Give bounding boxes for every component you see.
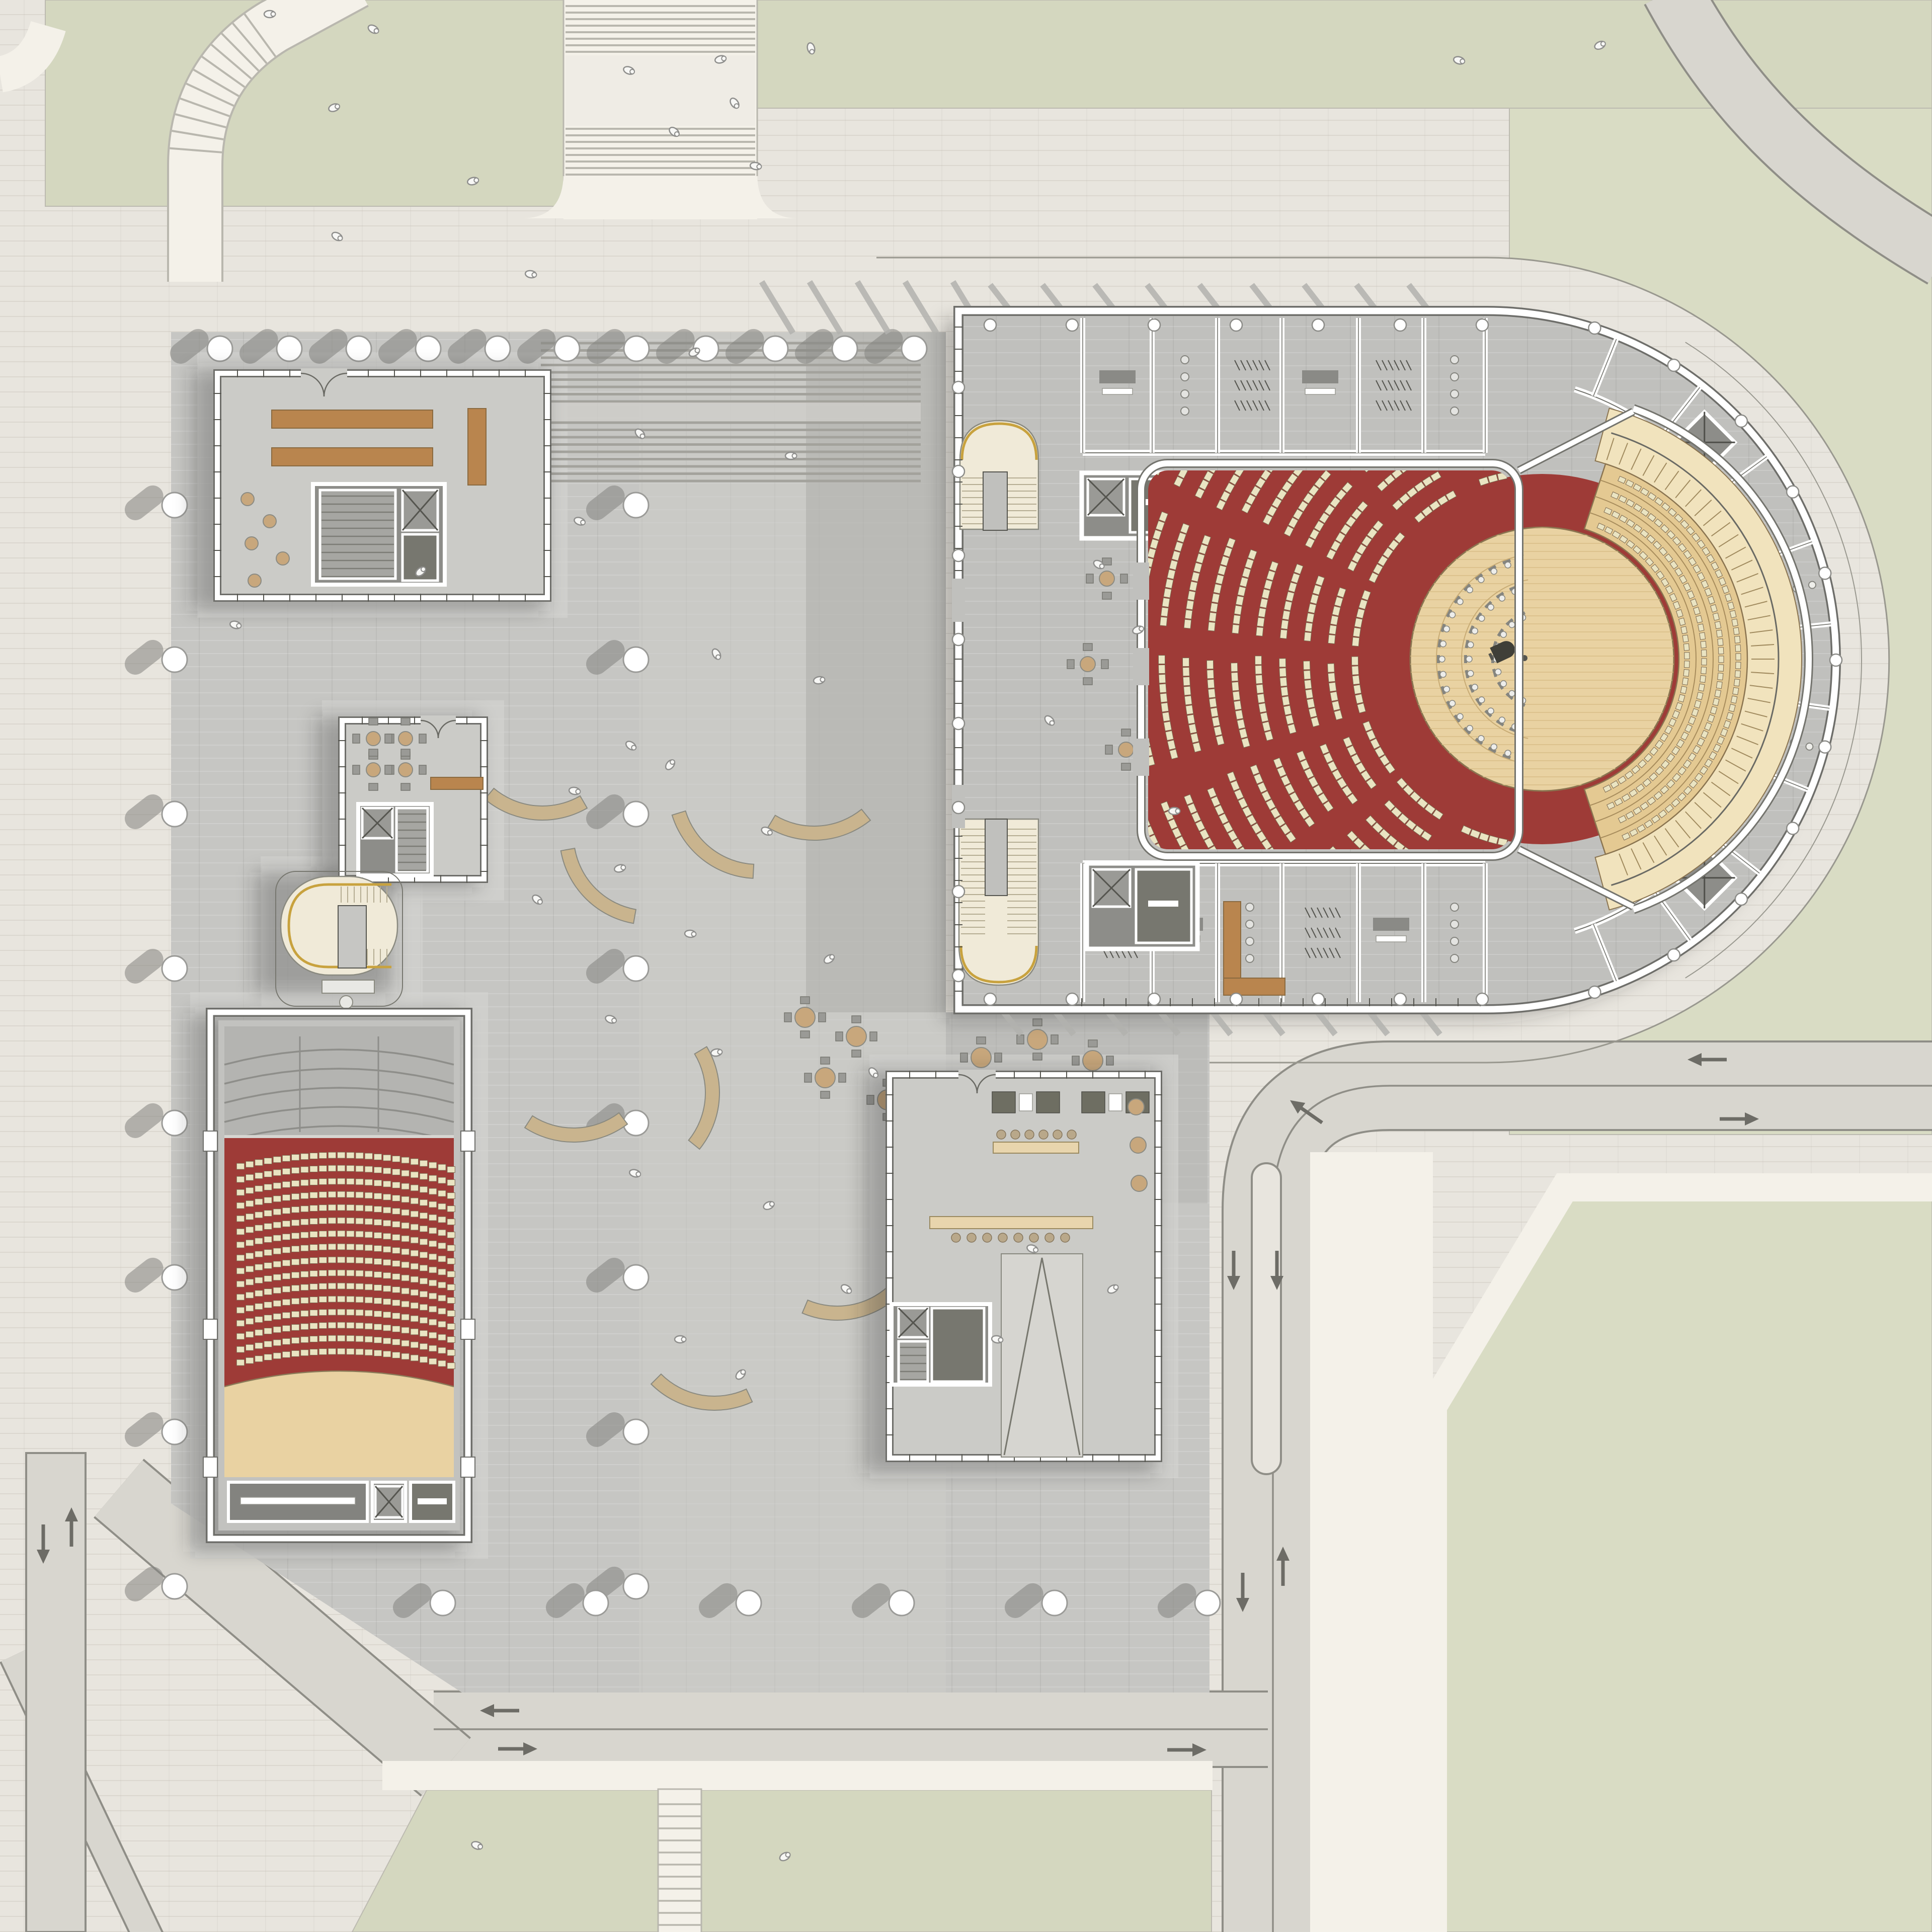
balcony [224, 1026, 454, 1135]
chair [353, 734, 360, 743]
chair [852, 1050, 861, 1057]
facade-column [952, 886, 964, 898]
chair [800, 997, 810, 1004]
canopy-column [623, 956, 649, 981]
cafe-table [1083, 1051, 1103, 1071]
cafe-table [815, 1068, 835, 1088]
canopy-column [207, 336, 232, 361]
cafe-table [971, 1048, 991, 1068]
hall-entrance [1133, 739, 1149, 776]
facade-column [1312, 319, 1324, 331]
stool [998, 1233, 1007, 1242]
stool [983, 1233, 992, 1242]
canopy-column [889, 1590, 914, 1616]
chair [784, 1013, 791, 1022]
cafe-table [398, 763, 413, 777]
facade-column [1668, 949, 1680, 961]
canopy-column [1195, 1590, 1220, 1616]
facade-column [1148, 993, 1160, 1005]
facade-column [1476, 319, 1488, 331]
sofa [1036, 1092, 1060, 1113]
chair [960, 1053, 968, 1062]
canopy-column [162, 1574, 187, 1599]
facade-column [1230, 319, 1242, 331]
canopy-column [623, 647, 649, 672]
door-gap [958, 1070, 996, 1080]
cafe-table [366, 763, 380, 777]
canopy-column [485, 336, 510, 361]
entrance-door [952, 579, 965, 622]
chair [1033, 1019, 1042, 1026]
chair [401, 718, 410, 725]
bench [322, 980, 374, 993]
canopy-column [583, 1590, 608, 1616]
hall-entrance [1133, 648, 1149, 685]
stool [1067, 1130, 1076, 1139]
round-table [276, 552, 289, 565]
theater-stage [224, 1371, 454, 1477]
canopy-column [430, 1590, 455, 1616]
chair [1106, 1056, 1113, 1065]
stepped-lawn-path [658, 1789, 701, 1932]
chair [977, 1037, 986, 1044]
facade-column [984, 993, 996, 1005]
facade-column [952, 970, 964, 982]
cafe-bar [431, 777, 483, 789]
chair [821, 1057, 830, 1064]
canopy-column [623, 1419, 649, 1444]
stair [320, 490, 395, 579]
round-table [248, 574, 261, 587]
chair [1017, 1035, 1024, 1044]
chair [821, 1091, 830, 1098]
canopy-column [623, 801, 649, 827]
ramp-down [1001, 1254, 1083, 1457]
facade-column [952, 801, 964, 814]
facade-column [952, 633, 964, 646]
stool [1011, 1130, 1020, 1139]
door-gap [301, 368, 347, 378]
facade-column [1787, 822, 1799, 834]
chair [1088, 1040, 1097, 1047]
canopy-column [1042, 1590, 1067, 1616]
cafe-table [1027, 1029, 1048, 1050]
cafe-table [846, 1026, 866, 1046]
stool [1014, 1233, 1023, 1242]
canopy-column [162, 801, 187, 827]
facade-column [1819, 567, 1831, 579]
canopy-column [162, 1419, 187, 1444]
person-figure [684, 930, 696, 938]
canopy-column [763, 336, 788, 361]
stool [1045, 1233, 1054, 1242]
chair [836, 1032, 843, 1041]
canopy-column [416, 336, 441, 361]
shop-counter [272, 410, 433, 428]
cafe-table [1099, 571, 1114, 586]
facade-column [1819, 741, 1831, 753]
display-counter [993, 1142, 1079, 1153]
drama-theater-hall [203, 1012, 475, 1539]
display-counter [930, 1217, 1093, 1229]
canopy-column [832, 336, 857, 361]
fixture [1806, 743, 1813, 750]
canopy-column [902, 336, 927, 361]
chair [995, 1053, 1002, 1062]
chair [385, 765, 392, 774]
exhibition-pavilion [886, 1070, 1162, 1462]
round-table [1128, 1099, 1144, 1115]
canopy-shadow [806, 332, 946, 1012]
chair [852, 1016, 861, 1023]
cafe-table [795, 1007, 815, 1027]
canopy-column [162, 956, 187, 981]
chair [800, 1031, 810, 1038]
person-figure [1169, 808, 1180, 815]
chair [1120, 574, 1128, 583]
canopy-column [277, 336, 302, 361]
facade-column [952, 465, 964, 477]
round-table [263, 515, 276, 528]
chair [870, 1032, 877, 1041]
person-figure [785, 452, 797, 459]
chair [369, 783, 378, 790]
canopy-column [162, 493, 187, 518]
chair [819, 1013, 826, 1022]
chair [385, 734, 392, 743]
stool [1029, 1233, 1038, 1242]
stool [1039, 1130, 1048, 1139]
fixture [1809, 582, 1816, 589]
round-table [1130, 1137, 1146, 1153]
dropoff-island [1252, 1163, 1281, 1474]
chair [1051, 1035, 1058, 1044]
stool [997, 1130, 1006, 1139]
stool [1053, 1130, 1062, 1139]
canopy-column [162, 1265, 187, 1290]
facade-column [1830, 654, 1842, 666]
facade-column [1312, 993, 1324, 1005]
chair [1121, 729, 1131, 736]
chair [401, 749, 410, 756]
chair [839, 1073, 846, 1082]
facade-column [952, 717, 964, 730]
canopy-column [623, 1265, 649, 1290]
chair [419, 734, 426, 743]
chair [1102, 592, 1111, 599]
white-path-band [382, 1761, 1213, 1790]
sofa [1082, 1092, 1105, 1113]
orchestra-chair [1437, 655, 1445, 663]
chair [1033, 1053, 1042, 1060]
concert-hall-site-plan [0, 0, 1932, 1932]
round-table [1131, 1175, 1147, 1191]
facade-column [1787, 486, 1799, 498]
foyer-bar [1224, 978, 1285, 995]
chair [1121, 763, 1131, 770]
orchestra-stage [1410, 527, 1674, 791]
facade-column [1394, 319, 1406, 331]
round-table [241, 493, 254, 506]
person-figure [675, 1336, 686, 1343]
road-west [26, 1453, 86, 1932]
canopy-column [162, 647, 187, 672]
facade-column [1735, 893, 1747, 905]
facade-column [1066, 319, 1078, 331]
facade-column [984, 319, 996, 331]
cafe-table [1118, 742, 1134, 757]
orchestra-chair [1464, 655, 1472, 663]
canopy-column [624, 336, 649, 361]
facade-column [952, 381, 964, 393]
canopy-column [623, 493, 649, 518]
site-plan-page [0, 0, 1932, 1932]
canopy-column [736, 1590, 761, 1616]
chair [1101, 660, 1108, 669]
chair [401, 783, 410, 790]
white-path-band [1310, 1152, 1433, 1932]
facade-column [1066, 993, 1078, 1005]
stool [967, 1233, 976, 1242]
facade-column [1148, 319, 1160, 331]
chair [419, 765, 426, 774]
facade-column [952, 549, 964, 561]
canopy-column [346, 336, 371, 361]
chair [353, 765, 360, 774]
facade-column [1476, 993, 1488, 1005]
chair [804, 1073, 812, 1082]
facade-column [1588, 322, 1600, 334]
stool [951, 1233, 960, 1242]
canopy-column [162, 1110, 187, 1136]
chair [1083, 643, 1092, 651]
chair [369, 718, 378, 725]
facade-column [1668, 359, 1680, 371]
cafe-table [1080, 657, 1095, 672]
cafe-table [366, 732, 380, 746]
door-gap [421, 715, 456, 726]
drama-theater [203, 1012, 475, 1539]
canopy-column [554, 336, 580, 361]
canopy-column [623, 1574, 649, 1599]
sofa [992, 1092, 1015, 1113]
chair [1083, 678, 1092, 685]
hall-entrance [1133, 562, 1149, 600]
chair [1086, 574, 1093, 583]
stool [1061, 1233, 1070, 1242]
shop-pavilion [213, 368, 551, 602]
facade-column [1394, 993, 1406, 1005]
person-figure [264, 11, 276, 18]
facade-column [1230, 993, 1242, 1005]
shop-counter [272, 448, 433, 466]
round-table [245, 537, 258, 550]
stool [1025, 1130, 1034, 1139]
chair [1072, 1056, 1079, 1065]
facade-column [1588, 986, 1600, 998]
chair [1105, 745, 1112, 754]
cafe-table [398, 732, 413, 746]
facade-column [1735, 415, 1747, 427]
chair [369, 749, 378, 756]
chair [1067, 660, 1074, 669]
shop-counter [468, 409, 486, 485]
cafe-pavilion [338, 715, 488, 883]
